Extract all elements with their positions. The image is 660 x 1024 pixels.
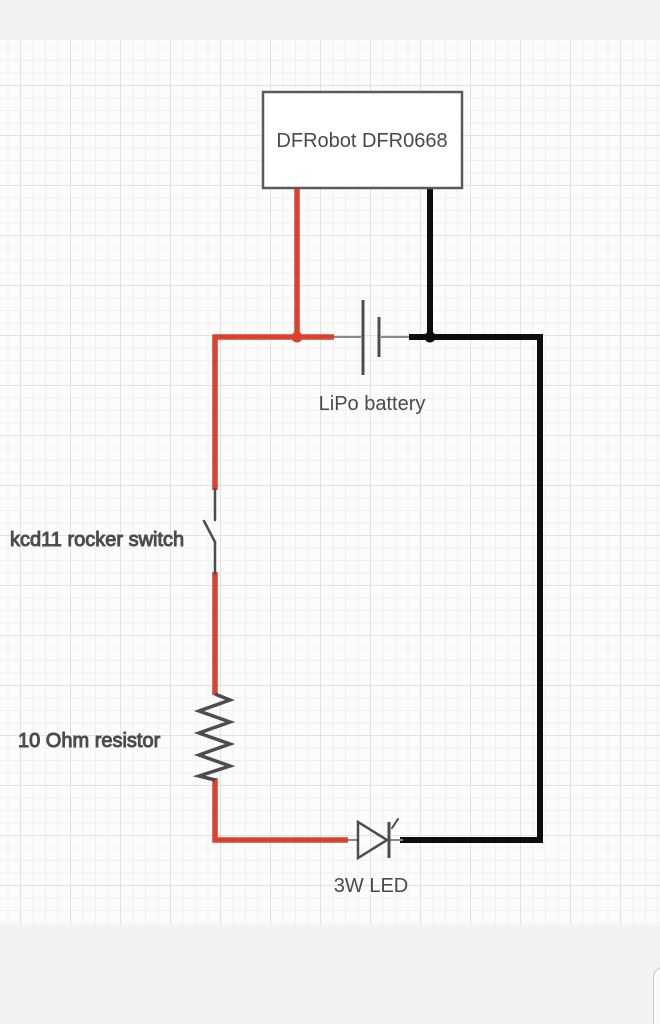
circuit-schematic: DFRobot DFR0668 LiPo battery kcd11 rocke… bbox=[0, 0, 660, 1024]
positive-wires bbox=[215, 188, 348, 840]
board-component[interactable]: DFRobot DFR0668 bbox=[263, 92, 462, 188]
bottom-right-panel-corner bbox=[653, 967, 660, 1024]
led-emission-tick[interactable] bbox=[392, 819, 398, 828]
wire-resistor-to-led-positive[interactable] bbox=[215, 778, 348, 840]
led-label: 3W LED bbox=[334, 875, 408, 897]
switch-component[interactable]: kcd11 rocker switch bbox=[10, 489, 215, 573]
junction-dot[interactable] bbox=[425, 332, 436, 343]
wire-battery-to-switch-positive[interactable] bbox=[215, 337, 334, 490]
board-label: DFRobot DFR0668 bbox=[276, 130, 447, 152]
negative-junction-dot[interactable] bbox=[425, 332, 436, 343]
resistor-label: 10 Ohm resistor bbox=[18, 730, 161, 752]
switch-label: kcd11 rocker switch bbox=[10, 529, 184, 551]
resistor-component[interactable]: 10 Ohm resistor bbox=[18, 694, 230, 780]
resistor-zigzag[interactable] bbox=[199, 694, 230, 780]
schematic-editor: DFRobot DFR0668 LiPo battery kcd11 rocke… bbox=[0, 0, 660, 1024]
negative-wires bbox=[400, 188, 540, 840]
positive-junction-dot[interactable] bbox=[292, 332, 303, 343]
led-component[interactable]: 3W LED bbox=[334, 819, 408, 897]
switch-lever[interactable] bbox=[204, 521, 215, 542]
junction-dot[interactable] bbox=[292, 332, 303, 343]
battery-label: LiPo battery bbox=[319, 393, 426, 415]
led-triangle[interactable] bbox=[358, 822, 387, 858]
battery-component[interactable]: LiPo battery bbox=[319, 300, 426, 415]
